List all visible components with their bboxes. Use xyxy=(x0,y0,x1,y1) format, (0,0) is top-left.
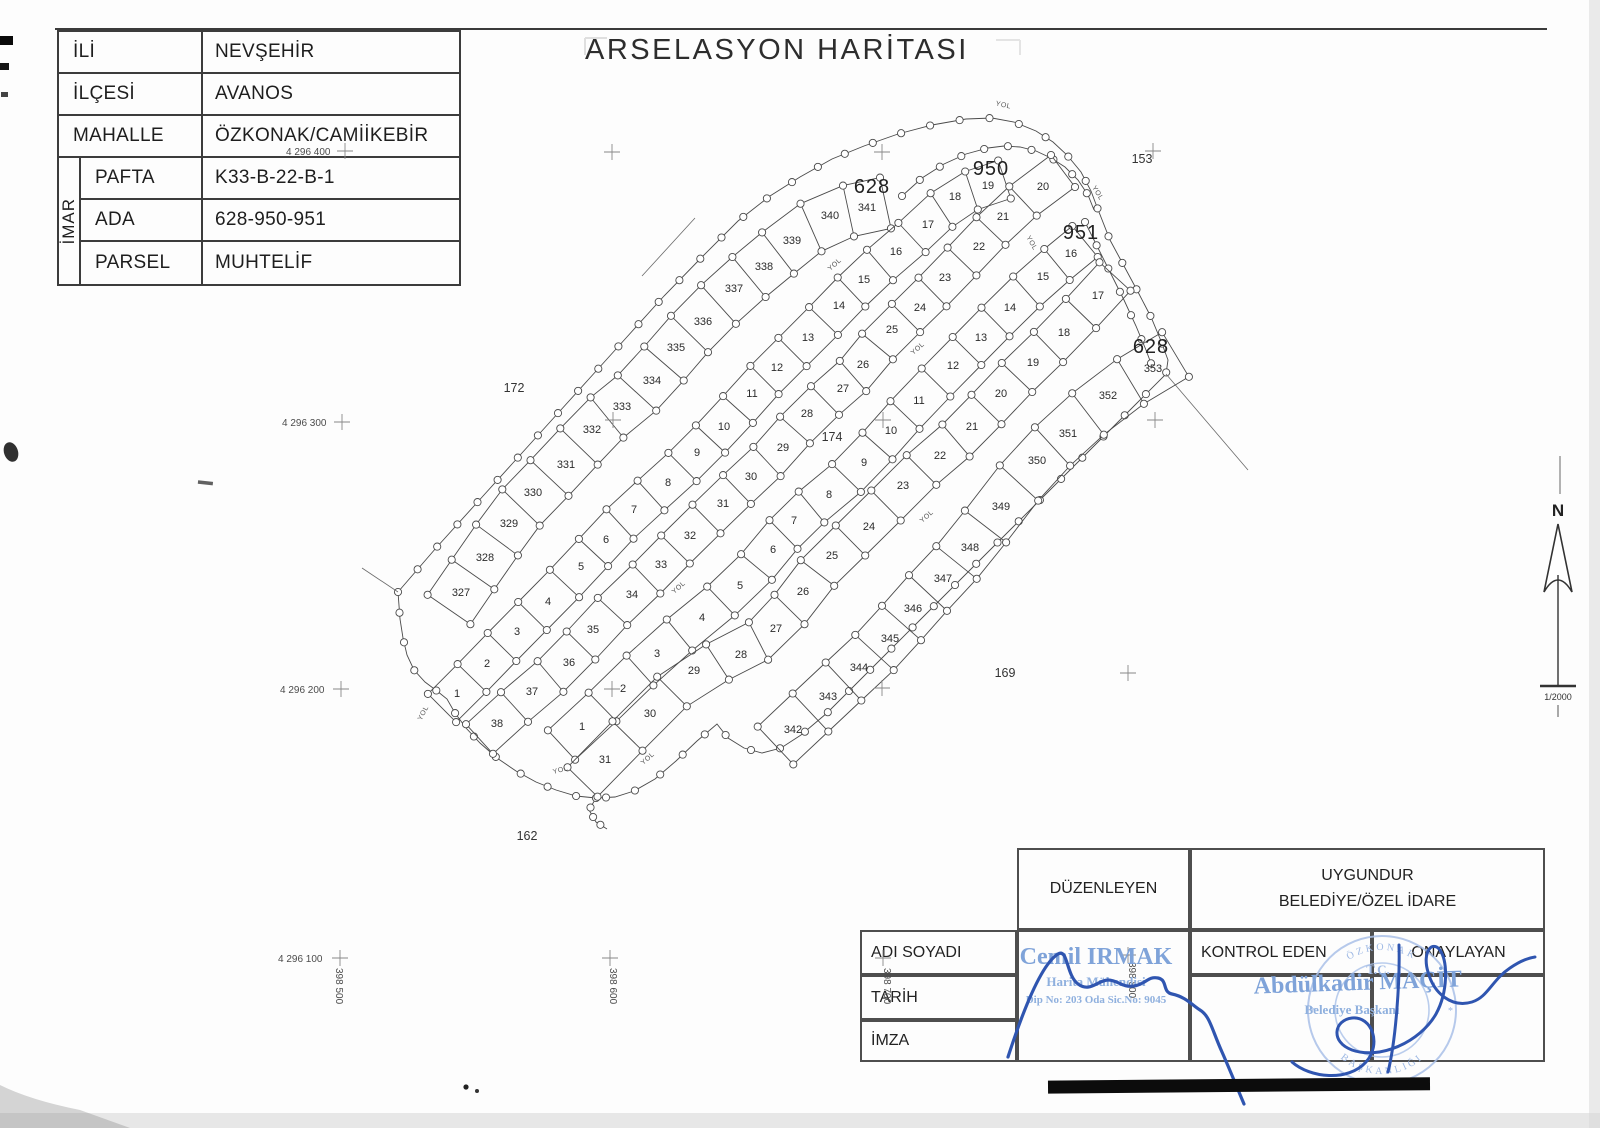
parcel-number: 30 xyxy=(644,708,656,720)
uygundur-line1: UYGUNDUR xyxy=(1321,867,1413,884)
parcel-number: 36 xyxy=(563,657,575,669)
parcel-number: 23 xyxy=(897,480,909,492)
parcel-number: 346 xyxy=(904,603,922,615)
grid-cross xyxy=(604,681,620,697)
parcel-number: 335 xyxy=(667,342,685,354)
parcel-number: 344 xyxy=(850,662,868,674)
grid-cross xyxy=(875,412,891,428)
parcel-number: 7 xyxy=(791,515,797,527)
road-label: YOL xyxy=(1024,235,1038,252)
parcel-number: 3 xyxy=(514,626,520,638)
parcel-number: 18 xyxy=(1058,327,1070,339)
info-label-parsel: PARSEL xyxy=(81,242,203,284)
cell-duzenleyen-signature-area xyxy=(1017,930,1190,1062)
scale-label: 1/2000 xyxy=(1544,692,1572,702)
north-arrowhead xyxy=(1544,524,1572,592)
parcel-number: 340 xyxy=(821,210,839,222)
uygundur-line2: BELEDİYE/ÖZEL İDARE xyxy=(1279,893,1456,910)
road-label: YOL xyxy=(827,257,843,273)
parcel-number: 25 xyxy=(826,550,838,562)
parcel-number: 332 xyxy=(583,424,601,436)
parcel-number: 5 xyxy=(578,561,584,573)
grid-cross xyxy=(1120,665,1136,681)
parcel-number: 15 xyxy=(1037,271,1049,283)
info-value-ili: NEVŞEHİR xyxy=(203,32,459,74)
parcel-number: 29 xyxy=(777,442,789,454)
parcel-number: 5 xyxy=(737,580,743,592)
adjacent-area-number: 153 xyxy=(1132,152,1153,166)
road-label: YOL xyxy=(417,705,430,722)
cell-uygundur: UYGUNDUR BELEDİYE/ÖZEL İDARE xyxy=(1190,848,1545,930)
parcel-number: 4 xyxy=(699,612,705,624)
block-number: 951 xyxy=(1063,222,1099,244)
parcel-number: 14 xyxy=(1004,302,1016,314)
parcel-number: 331 xyxy=(557,459,575,471)
parcel-number: 351 xyxy=(1059,428,1077,440)
imar-vertical-label: İMAR xyxy=(59,158,81,284)
cell-duzenleyen: DÜZENLEYEN xyxy=(1017,848,1190,930)
adjacent-area-number: 169 xyxy=(995,666,1016,680)
parcel-number: 16 xyxy=(1065,248,1077,260)
parcel-number: 11 xyxy=(913,395,924,407)
grid-cross xyxy=(874,144,890,160)
grid-cross xyxy=(605,412,621,428)
grid-cross xyxy=(874,680,890,696)
parcel-number: 28 xyxy=(801,408,813,420)
parcel-number: 38 xyxy=(491,718,503,730)
info-value-ada: 628-950-951 xyxy=(203,200,459,242)
easting-label: 398 500 xyxy=(333,968,344,1005)
parcel-number: 345 xyxy=(881,633,899,645)
road-label: YOL xyxy=(910,341,926,357)
parcel-number: 20 xyxy=(995,388,1007,400)
parcel-number: 22 xyxy=(973,241,985,253)
page-title: ARSELASYON HARİTASI xyxy=(585,34,969,67)
parcel-number: 17 xyxy=(922,219,934,231)
parcel-number: 25 xyxy=(886,324,898,336)
parcel-number: 31 xyxy=(599,754,611,766)
info-label-ilcesi: İLÇESİ xyxy=(59,74,203,116)
parcel-number: 11 xyxy=(746,388,757,400)
parcel-number: 29 xyxy=(688,665,700,677)
parcel-number: 20 xyxy=(1037,181,1049,193)
parcel-number: 23 xyxy=(939,272,951,284)
parcel-number: 19 xyxy=(982,180,994,192)
info-label-mahalle: MAHALLE xyxy=(59,116,203,158)
cell-onaylayan-signature-area xyxy=(1372,975,1545,1062)
parcel-number: 12 xyxy=(947,360,959,372)
parcel-number: 2 xyxy=(484,658,490,670)
northing-label: 4 296 200 xyxy=(280,685,325,696)
grid-cross xyxy=(333,681,349,697)
parcel-number: 6 xyxy=(770,544,776,556)
parcel-number: 24 xyxy=(914,302,926,314)
parcel-number: 1 xyxy=(454,688,460,700)
grid-cross xyxy=(332,950,348,966)
scan-edge-band xyxy=(1048,1077,1430,1093)
northing-label: 4 296 300 xyxy=(282,418,327,429)
parcel-number: 352 xyxy=(1099,390,1117,402)
block-number: 628 xyxy=(1133,336,1169,358)
grid-cross xyxy=(604,144,620,160)
parcel-number: 353 xyxy=(1144,363,1162,375)
parcel-number: 336 xyxy=(694,316,712,328)
parcel-number: 8 xyxy=(826,489,832,501)
ink-smudge xyxy=(1,440,20,463)
parcel-number: 12 xyxy=(771,362,783,374)
parcel-number: 1 xyxy=(579,721,585,733)
parcel-number: 27 xyxy=(837,383,849,395)
road-label: YOL xyxy=(919,509,935,525)
parcel-number: 334 xyxy=(643,375,661,387)
parcel-number: 19 xyxy=(1027,357,1039,369)
parcel-number: 32 xyxy=(684,530,696,542)
north-arrow: N 1/2000 xyxy=(1540,456,1576,717)
parcel-number: 337 xyxy=(725,283,743,295)
road-label: YOL xyxy=(671,580,687,596)
parcel-number: 2 xyxy=(620,683,626,695)
parcel-number: 350 xyxy=(1028,455,1046,467)
parcel-number: 14 xyxy=(833,300,845,312)
parcel-number: 4 xyxy=(545,596,551,608)
parcel-number: 17 xyxy=(1092,290,1104,302)
parcel-number: 329 xyxy=(500,518,518,530)
adjacent-area-number: 174 xyxy=(822,430,843,444)
adjacent-area-number: 162 xyxy=(517,829,538,843)
info-value-mahalle: ÖZKONAK/CAMİİKEBİR xyxy=(203,116,459,158)
parcel-number: 18 xyxy=(949,191,961,203)
parcel-number: 8 xyxy=(665,477,671,489)
parcel-number: 26 xyxy=(857,359,869,371)
parcel-number: 328 xyxy=(476,552,494,564)
adjacent-area-number: 172 xyxy=(504,381,525,395)
easting-label: 398 600 xyxy=(607,968,618,1005)
parcel-number: 28 xyxy=(735,649,747,661)
road-label: YOL xyxy=(640,751,656,767)
grid-cross xyxy=(602,950,618,966)
scanned-parcel-map-sheet: { "title": "ARSELASYON HARİTASI", "info_… xyxy=(0,0,1600,1128)
parcel-number: 9 xyxy=(861,457,867,469)
parcel-number: 22 xyxy=(934,450,946,462)
parcel-number: 10 xyxy=(885,425,897,437)
parcel-number: 10 xyxy=(718,421,730,433)
parcel-number: 3 xyxy=(654,648,660,660)
parcel-number: 333 xyxy=(613,401,631,413)
cell-adi-soyadi: ADI SOYADI xyxy=(860,930,1017,975)
parcel-number: 31 xyxy=(717,498,729,510)
parcel-number: 6 xyxy=(603,534,609,546)
parcel-number: 26 xyxy=(797,586,809,598)
parcel-number: 16 xyxy=(890,246,902,258)
block-number: 628 xyxy=(854,176,890,198)
northing-label: 4 296 100 xyxy=(278,954,323,965)
parcel-number: 327 xyxy=(452,587,470,599)
cell-onaylayan: ONAYLAYAN xyxy=(1372,930,1545,975)
info-table: İLİ NEVŞEHİR İLÇESİ AVANOS MAHALLE ÖZKON… xyxy=(57,30,461,286)
grid-cross xyxy=(1145,143,1161,159)
parcel-number: 342 xyxy=(784,724,802,736)
parcel-number: 349 xyxy=(992,501,1010,513)
cell-tarih: TARİH xyxy=(860,975,1017,1020)
parcel-number: 35 xyxy=(587,624,599,636)
cell-kontrol-eden: KONTROL EDEN xyxy=(1190,930,1372,975)
parcel-number: 34 xyxy=(626,589,638,601)
parcel-number: 21 xyxy=(966,421,978,433)
info-label-pafta: PAFTA xyxy=(81,158,203,200)
parcel-number: 338 xyxy=(755,261,773,273)
grid-cross xyxy=(334,414,350,430)
parcel-number: 13 xyxy=(975,332,987,344)
info-label-ada: ADA xyxy=(81,200,203,242)
road-label: YOL xyxy=(552,765,569,776)
grid-cross xyxy=(1147,412,1163,428)
road-label: YOL xyxy=(995,100,1012,110)
parcel-number: 30 xyxy=(745,471,757,483)
parcel-number: 330 xyxy=(524,487,542,499)
parcel-number: 347 xyxy=(934,573,952,585)
parcel-number: 339 xyxy=(783,235,801,247)
north-label: N xyxy=(1552,501,1564,520)
info-value-parsel: MUHTELİF xyxy=(203,242,459,284)
road-label: YOL xyxy=(1090,185,1104,202)
parcel-number: 7 xyxy=(631,504,637,516)
parcel-number: 9 xyxy=(694,447,700,459)
parcel-number: 341 xyxy=(858,202,876,214)
parcel-number: 21 xyxy=(997,211,1009,223)
parcel-number: 15 xyxy=(858,274,870,286)
parcel-number: 348 xyxy=(961,542,979,554)
cell-imza: İMZA xyxy=(860,1020,1017,1062)
info-label-ili: İLİ xyxy=(59,32,203,74)
info-value-ilcesi: AVANOS xyxy=(203,74,459,116)
parcel-number: 27 xyxy=(770,623,782,635)
parcel-number: 343 xyxy=(819,691,837,703)
block-number: 950 xyxy=(973,158,1009,180)
info-value-pafta: K33-B-22-B-1 xyxy=(203,158,459,200)
parcel-number: 13 xyxy=(802,332,814,344)
parcel-number: 24 xyxy=(863,521,875,533)
parcel-number: 37 xyxy=(526,686,538,698)
cell-kontrol-signature-area xyxy=(1190,975,1372,1062)
parcel-number: 33 xyxy=(655,559,667,571)
